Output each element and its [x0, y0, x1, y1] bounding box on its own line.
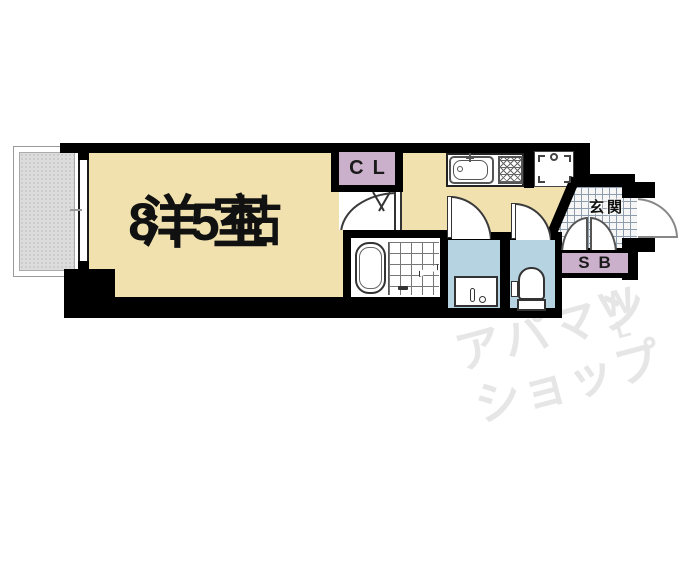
washbasin-icon [454, 276, 498, 307]
washbasin-faucet-icon [470, 288, 475, 302]
bathtub-inner [359, 247, 382, 289]
floor-plan-image: アパマン ショップ W L 洋室 8.5帖 CL 玄関 [0, 0, 690, 575]
main-room-label: 洋室 8.5帖 [80, 152, 330, 294]
entrance-label: 玄関 [580, 196, 634, 214]
main-room-size: 8.5帖 [128, 193, 291, 253]
shoe-box-doors-icon [561, 217, 617, 250]
shoe-box-label: SB [561, 253, 628, 273]
washer-tap-icon [550, 153, 558, 161]
toilet-icon [518, 267, 545, 300]
washer-pan-corner [564, 155, 571, 162]
washer-space-wall-left [524, 143, 534, 188]
bath-drain-icon [398, 286, 408, 290]
closet-label: CL [339, 152, 395, 185]
toilet-tank-icon [517, 299, 546, 311]
balcony-floor [19, 152, 75, 271]
toilet-door-arc-icon [516, 203, 551, 240]
toilet-control-icon [511, 281, 518, 297]
closet-block: CL [331, 146, 403, 192]
washer-pan-corner [538, 176, 545, 183]
sink-drain-icon [457, 166, 463, 172]
front-door-arc-icon [638, 198, 678, 240]
shoe-box-block: SB [556, 248, 633, 278]
washer-pan-corner [564, 176, 571, 183]
door-jamb [394, 192, 402, 230]
stove-icon [498, 156, 523, 184]
washbasin-knob-icon [479, 296, 486, 303]
washer-pan-corner [538, 155, 545, 162]
vanity-door-arc-icon [452, 196, 491, 239]
faucet-icon [466, 157, 474, 159]
